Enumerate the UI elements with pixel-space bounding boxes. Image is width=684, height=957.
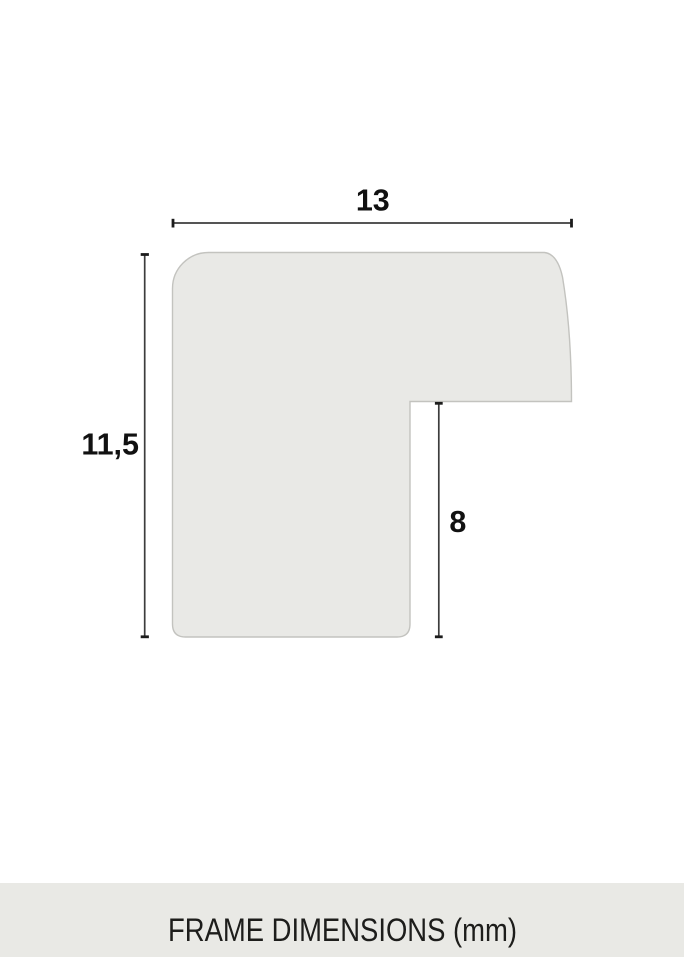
svg-text:FRAME DIMENSIONS (mm): FRAME DIMENSIONS (mm) — [168, 912, 517, 948]
svg-text:8: 8 — [449, 505, 466, 539]
svg-text:13: 13 — [356, 184, 390, 218]
svg-text:11,5: 11,5 — [81, 428, 139, 462]
